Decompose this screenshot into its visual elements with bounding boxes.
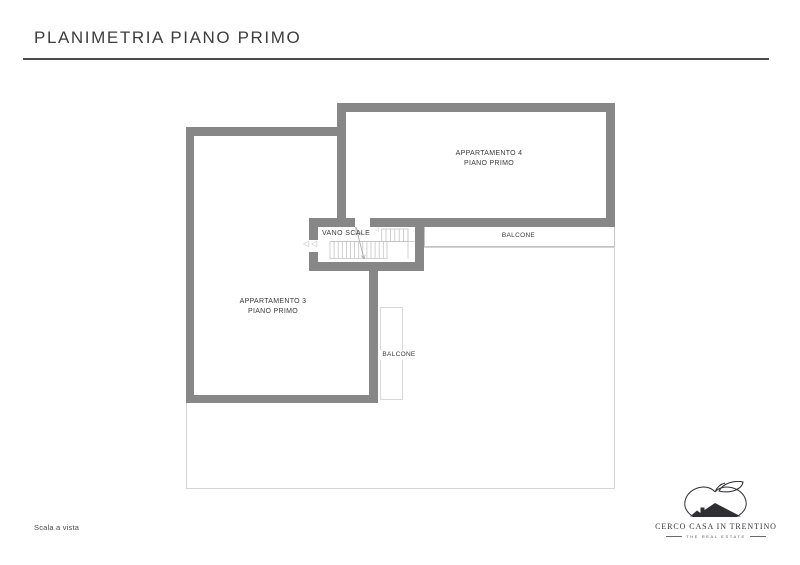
wall-apt3-top <box>186 127 337 136</box>
wall-apt3-bottom <box>186 395 378 403</box>
wall-apt3-right <box>369 262 378 403</box>
tagline-dash <box>750 536 766 537</box>
apartment-3-label: APPARTAMENTO 3 PIANO PRIMO <box>203 297 343 317</box>
door-marker-icon: ◁ <box>375 228 379 233</box>
apartment-4-label: APPARTAMENTO 4 PIANO PRIMO <box>419 149 559 169</box>
wall-apt4-top <box>337 103 615 112</box>
apartment-3-floor-lower <box>190 262 370 398</box>
apartment-3-floor-text: PIANO PRIMO <box>203 307 343 317</box>
wall-apt4-right <box>606 103 615 227</box>
apple-house-logo-icon <box>673 481 759 521</box>
stairwell-label: VANO SCALE <box>322 229 374 239</box>
agency-tagline: THE REAL ESTATE <box>650 534 782 539</box>
wall-stairwell-bottom <box>309 262 424 271</box>
door-marker-icon: ◁ <box>311 240 317 248</box>
wall-apt3-left <box>186 127 194 403</box>
agency-name: CERCO CASA IN TRENTINO <box>650 522 782 531</box>
balcony-top-label: BALCONE <box>424 231 613 241</box>
footnote: Scala a vista <box>34 523 79 532</box>
tagline-dash <box>666 536 682 537</box>
title-divider <box>23 58 769 60</box>
floor-plan-page: PLANIMETRIA PIANO PRIMO <box>0 0 800 565</box>
wall-apt4-left-divider <box>337 103 346 227</box>
wall-stairwell-left-upper <box>309 218 318 240</box>
page-title: PLANIMETRIA PIANO PRIMO <box>34 28 301 48</box>
apartment-4-floor-text: PIANO PRIMO <box>419 159 559 169</box>
apartment-3-name: APPARTAMENTO 3 <box>203 297 343 307</box>
agency-logo: CERCO CASA IN TRENTINO THE REAL ESTATE <box>650 481 782 539</box>
agency-tagline-text: THE REAL ESTATE <box>686 534 746 539</box>
door-marker-icon: ◁ <box>303 240 309 248</box>
balcony-side-label: BALCONE <box>380 350 418 360</box>
apartment-4-name: APPARTAMENTO 4 <box>419 149 559 159</box>
